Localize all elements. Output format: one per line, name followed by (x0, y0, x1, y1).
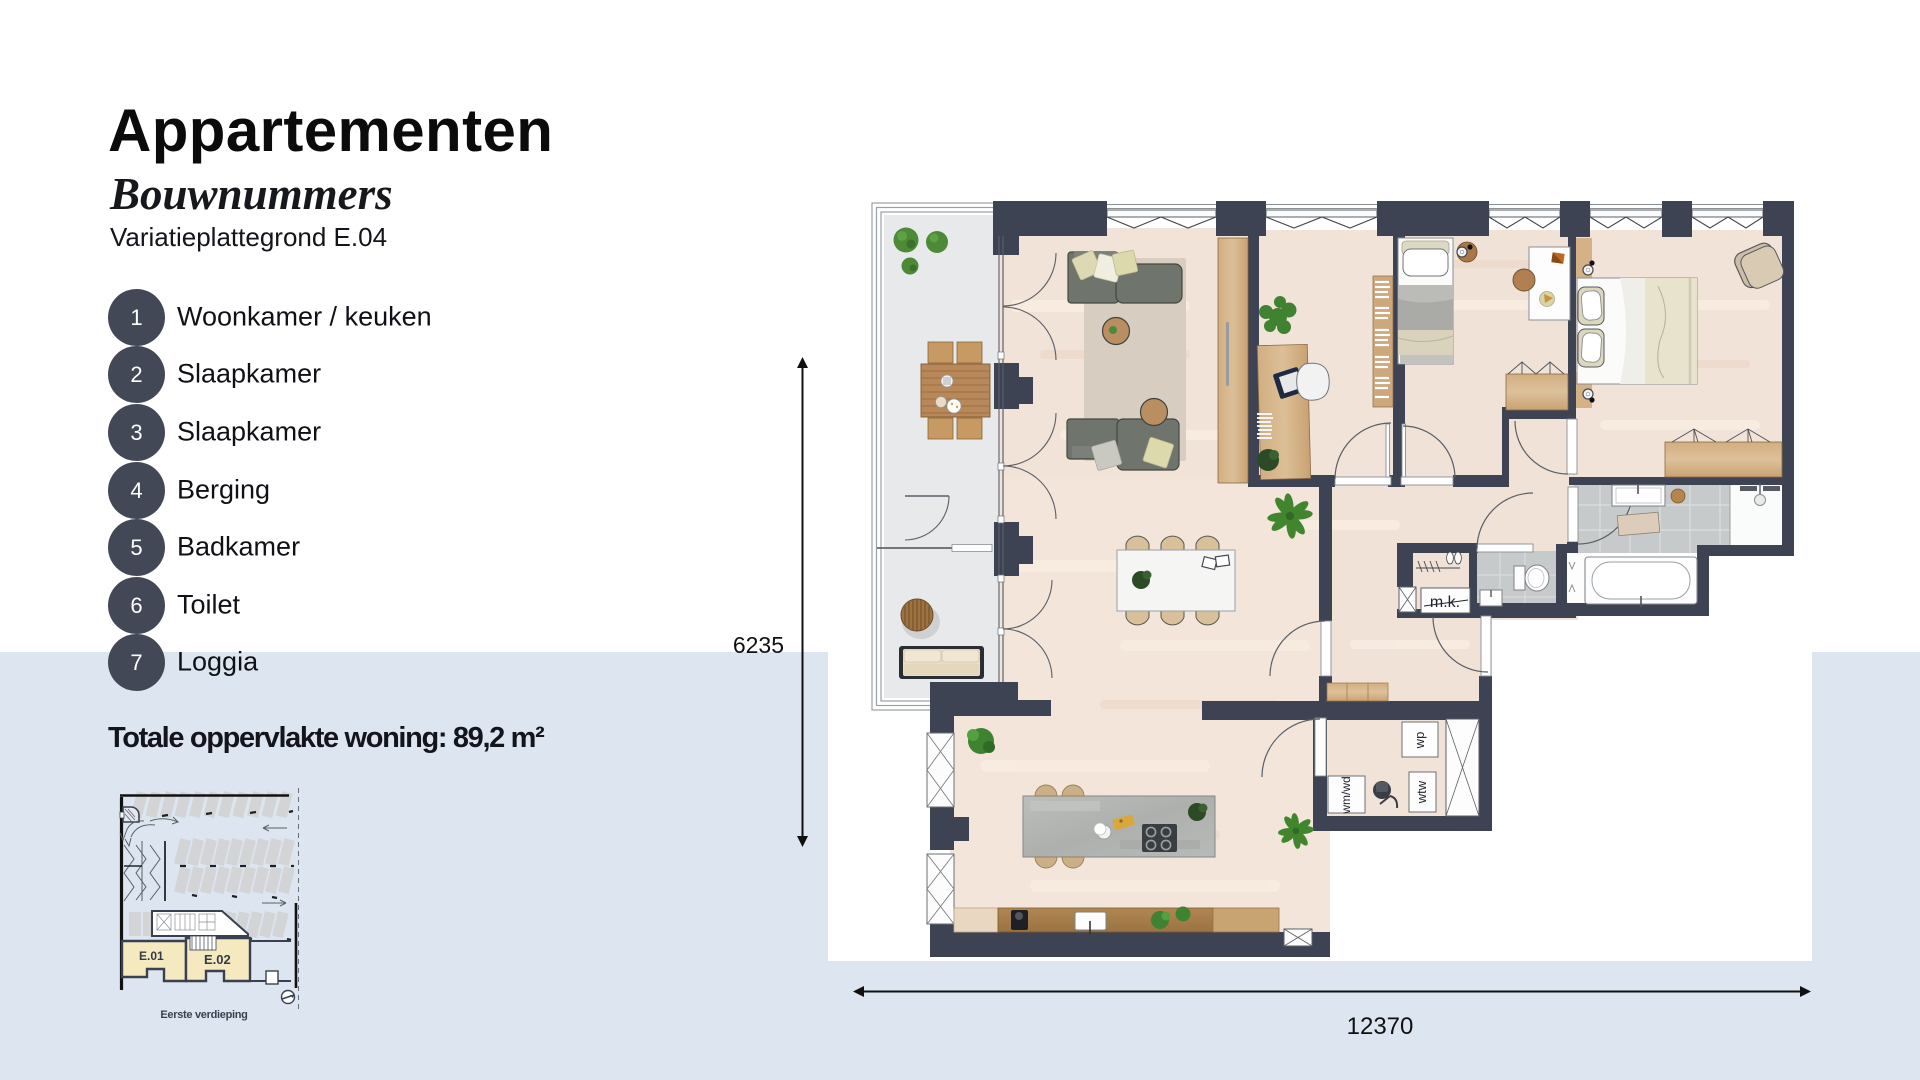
svg-text:Eerste verdieping: Eerste verdieping (160, 1009, 247, 1021)
svg-text:wp: wp (1412, 732, 1427, 750)
svg-text:6235: 6235 (733, 632, 784, 658)
svg-text:E.02: E.02 (204, 952, 231, 967)
svg-text:E.01: E.01 (139, 949, 164, 963)
svg-text:12370: 12370 (1347, 1013, 1414, 1040)
svg-text:wm/wd: wm/wd (1339, 776, 1353, 814)
svg-text:wtw: wtw (1414, 780, 1429, 804)
svg-text:m.k.: m.k. (1430, 594, 1460, 611)
